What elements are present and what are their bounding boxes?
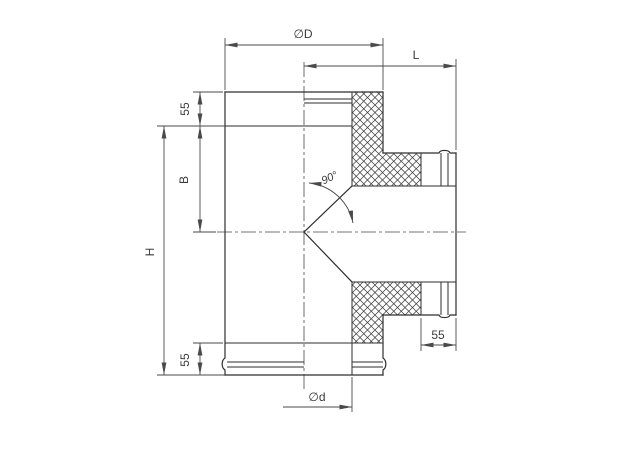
insulation-hatch-top	[352, 92, 421, 186]
dim-branch-end-socket: 55	[421, 318, 456, 351]
label-inner-diameter: ∅d	[308, 390, 325, 404]
pipe-left-edge	[222, 92, 225, 375]
label-outer-diameter: ∅D	[293, 27, 312, 41]
dim-branch-offset: B	[177, 126, 216, 232]
label-total-height: H	[143, 248, 157, 257]
label-branch-offset: B	[177, 176, 191, 184]
label-branch-end-socket: 55	[431, 328, 445, 342]
tee-fitting-drawing: ∅D L 55 B H 55 55 ∅d	[0, 0, 624, 460]
junction-cone-upper	[304, 186, 352, 232]
dim-inner-diameter: ∅d	[283, 377, 352, 412]
insulation-hatch-bottom	[352, 282, 421, 343]
junction-cone-lower	[304, 232, 352, 282]
label-branch-angle: 90°	[320, 169, 341, 187]
insulation-section	[352, 92, 421, 343]
pipe-right-edge-lower	[383, 315, 386, 375]
technical-drawing-canvas: ∅D L 55 B H 55 55 ∅d	[0, 0, 624, 460]
dim-total-height: H	[143, 126, 225, 375]
centerlines	[193, 62, 466, 390]
dim-top-socket: 55	[178, 92, 223, 126]
label-top-socket: 55	[178, 102, 192, 116]
dim-branch-angle: 90°	[309, 169, 353, 223]
label-bottom-socket: 55	[178, 353, 192, 367]
dim-bottom-socket: 55	[178, 343, 223, 375]
label-branch-length: L	[413, 48, 420, 62]
angle-arc	[309, 183, 353, 223]
branch-bottom-edge	[383, 315, 456, 318]
branch-top-edge	[383, 150, 456, 153]
